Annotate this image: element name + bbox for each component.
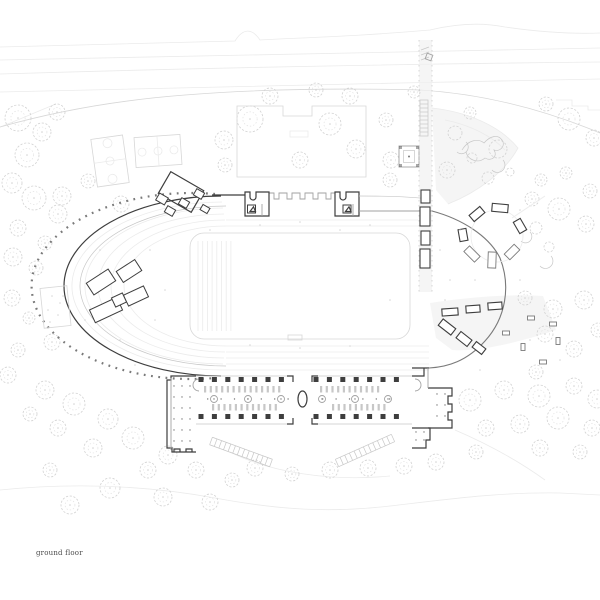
central-gap [287, 376, 318, 424]
site-context [91, 40, 600, 292]
tree [122, 427, 144, 449]
tree [379, 113, 393, 127]
bench [420, 249, 430, 268]
tree [319, 113, 341, 135]
ramps [210, 434, 395, 466]
circular-pavilion-plaza [458, 203, 527, 268]
bench [420, 207, 430, 226]
field-lanes [198, 241, 231, 331]
tree [218, 158, 232, 172]
tree [237, 106, 263, 132]
bench [421, 231, 430, 245]
tree [560, 167, 572, 179]
tree [528, 385, 550, 407]
tree [49, 205, 67, 223]
tree [383, 152, 399, 168]
bench [421, 190, 430, 203]
garden-pavilion [399, 146, 419, 167]
tree [5, 105, 31, 131]
west-cluster [86, 260, 148, 323]
ramp [335, 434, 394, 466]
west-colonnade-columns [32, 193, 215, 379]
tree [529, 365, 543, 379]
tree [43, 463, 57, 477]
tree [15, 143, 39, 167]
tree [459, 389, 481, 411]
tree [188, 462, 204, 478]
ramp [210, 437, 273, 467]
tree [44, 334, 60, 350]
tree [558, 108, 580, 130]
tree [29, 261, 43, 275]
tree [478, 420, 494, 436]
tree [53, 187, 71, 205]
tree [566, 341, 582, 357]
tree [539, 97, 553, 111]
crenellated-wall [269, 193, 335, 199]
tree [38, 236, 52, 250]
basketball-court-2 [134, 134, 182, 167]
tree [2, 173, 22, 193]
tree [0, 367, 16, 383]
playground-wash [432, 108, 518, 204]
tree [511, 415, 529, 433]
tree [525, 192, 539, 206]
sports-field [190, 233, 410, 340]
tree [33, 123, 51, 141]
tree [428, 454, 444, 470]
tree [50, 420, 66, 436]
gatehouse-west [245, 192, 269, 216]
tree [4, 290, 20, 306]
tree [81, 174, 95, 188]
tree [532, 440, 548, 456]
roads-and-contours [0, 24, 600, 510]
tree [285, 467, 299, 481]
tree [23, 407, 37, 421]
tree [347, 140, 365, 158]
tree [10, 220, 26, 236]
neighbour-building-edge [556, 100, 600, 110]
tree [535, 174, 547, 186]
basketball-court-1 [91, 135, 129, 187]
tree [591, 323, 600, 337]
tree [84, 439, 102, 457]
tree [11, 343, 25, 357]
tree [22, 186, 46, 210]
tree [588, 390, 600, 408]
gatehouse-east [335, 192, 359, 216]
main-building [167, 368, 452, 452]
tree [36, 381, 54, 399]
tree [547, 407, 569, 429]
tree [583, 184, 597, 198]
tree [566, 378, 582, 394]
tree [578, 216, 594, 232]
tree [342, 88, 358, 104]
site-plan-drawing [0, 0, 600, 600]
tree [4, 248, 22, 266]
tree [23, 312, 35, 324]
tree [360, 460, 376, 476]
tree [98, 409, 118, 429]
tree [61, 496, 79, 514]
tree [100, 478, 120, 498]
tree [215, 131, 233, 149]
tree [63, 393, 85, 415]
tree [202, 494, 218, 510]
tree [140, 462, 156, 478]
tree [469, 445, 483, 459]
tree [573, 445, 587, 459]
tree [292, 152, 308, 168]
tree [548, 198, 570, 220]
tree [584, 420, 600, 436]
existing-building-footprint [237, 106, 366, 177]
tree [225, 473, 239, 487]
tree [575, 291, 593, 309]
colonnade-columns [199, 377, 399, 419]
tree [113, 196, 129, 212]
drawing-caption: ground floor [36, 549, 83, 557]
west-end-block [167, 376, 199, 452]
plan-canvas [0, 0, 600, 600]
tree [408, 86, 420, 98]
tree [383, 173, 397, 187]
tree [396, 458, 412, 474]
tree [495, 381, 513, 399]
interior-furniture [173, 385, 445, 441]
building-detail [290, 131, 308, 137]
tree [322, 462, 338, 478]
east-end-block [412, 368, 452, 448]
